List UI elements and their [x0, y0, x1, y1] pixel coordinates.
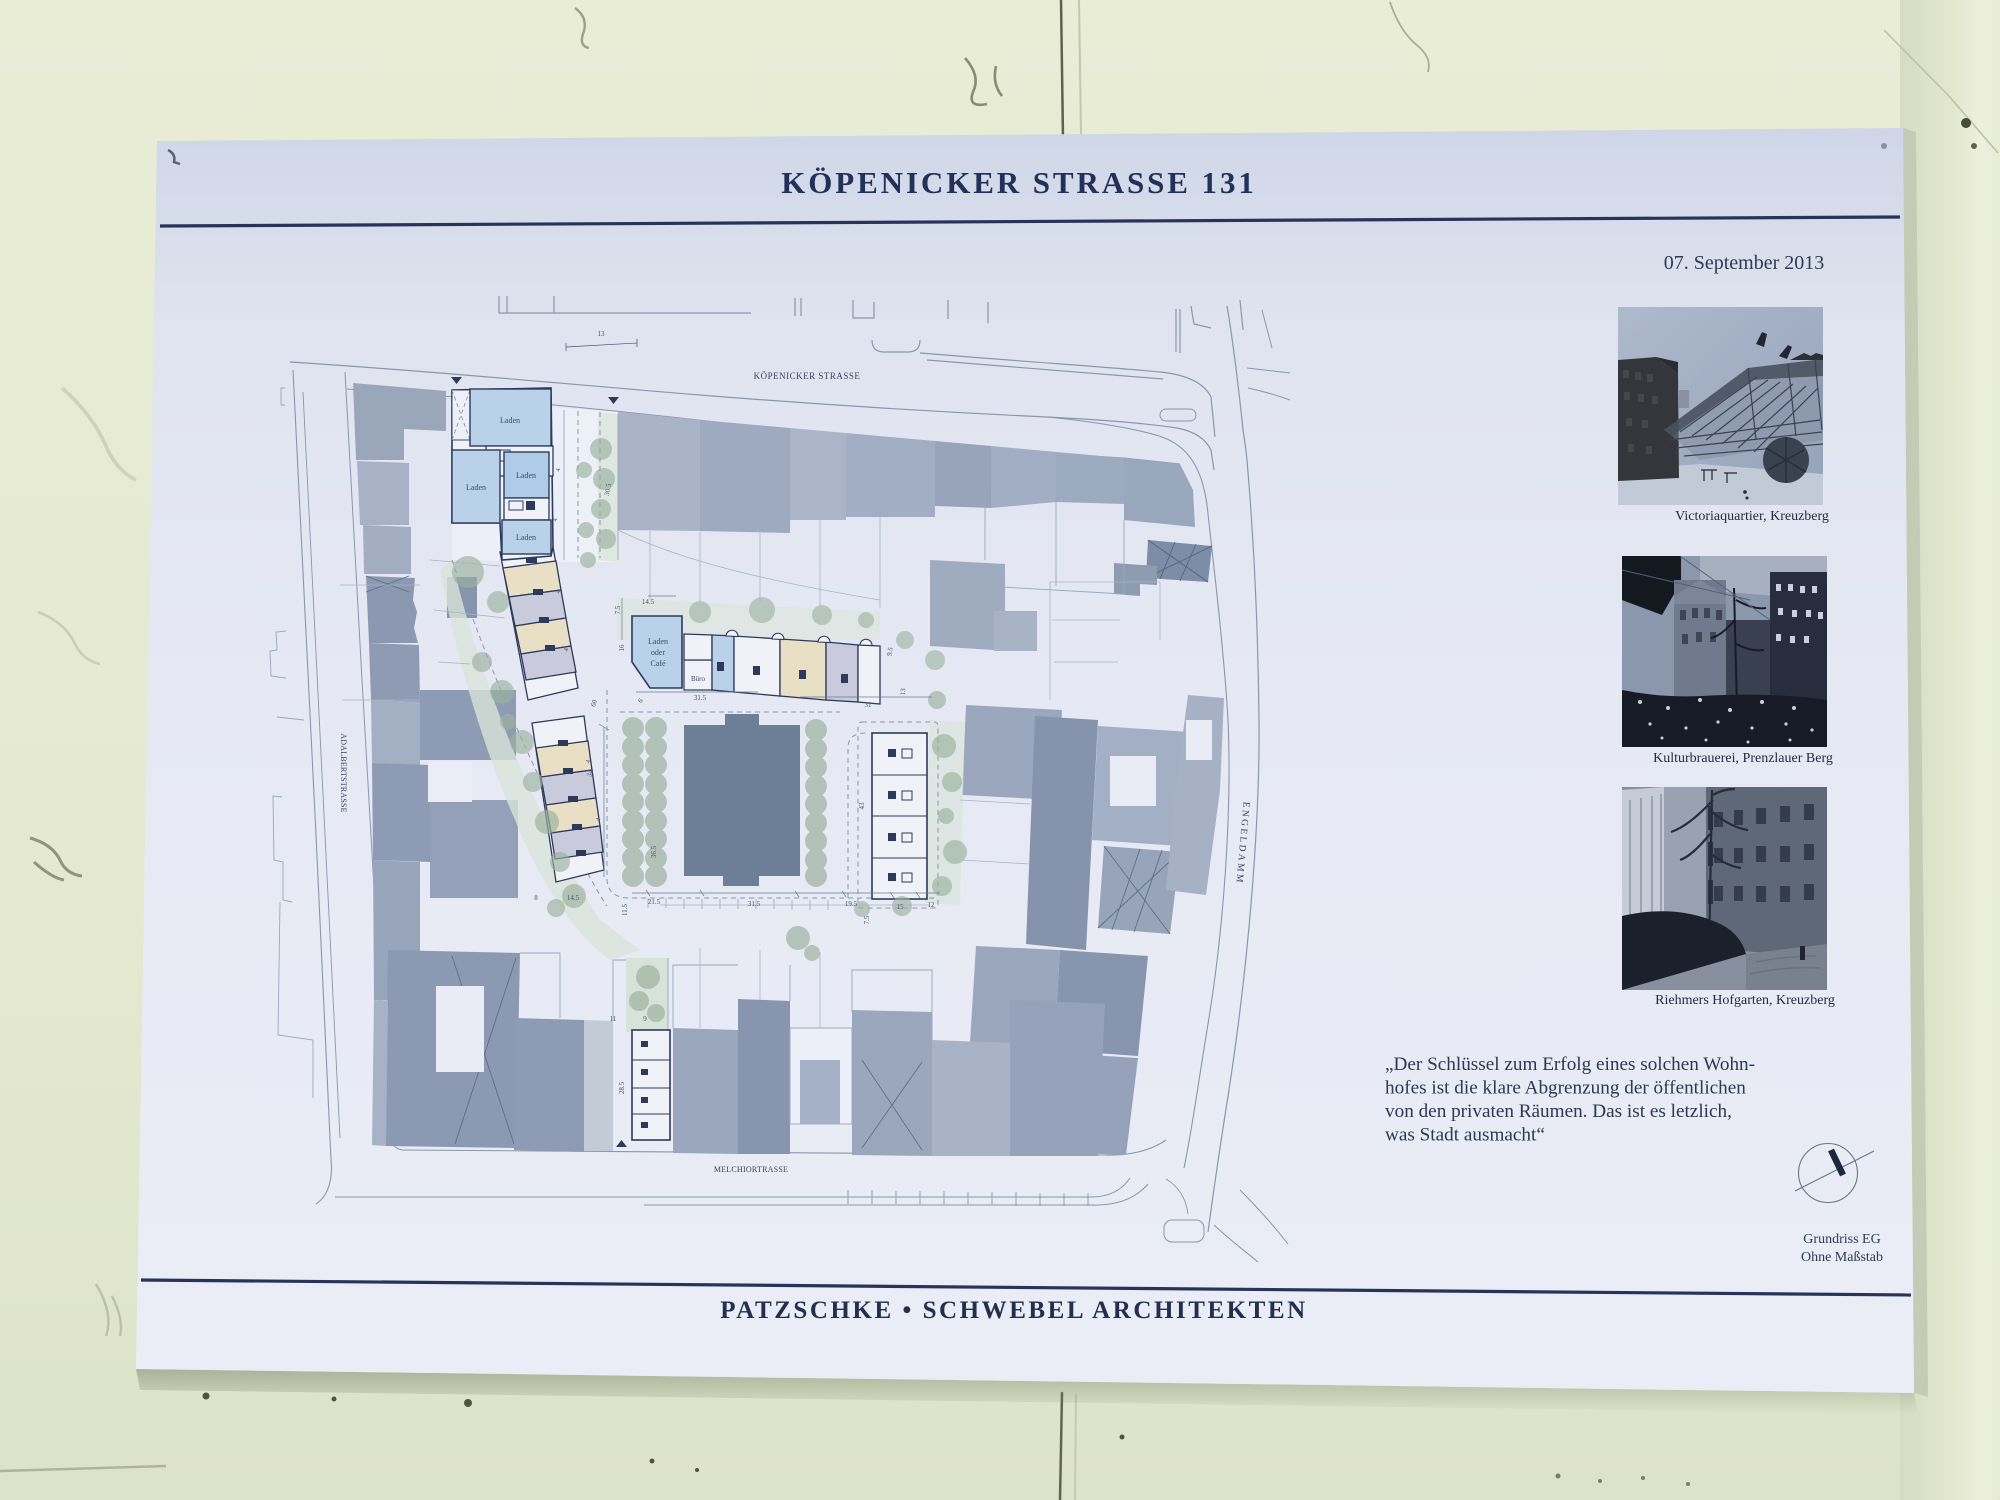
svg-text:Laden: Laden [500, 416, 520, 425]
svg-text:07. September 2013: 07. September 2013 [1664, 252, 1825, 274]
svg-text:31.5: 31.5 [694, 694, 707, 702]
svg-text:14.5: 14.5 [642, 598, 655, 606]
svg-text:Kulturbrauerei, Prenzlauer Ber: Kulturbrauerei, Prenzlauer Berg [1653, 751, 1833, 766]
svg-text:KÖPENICKER STRASSE: KÖPENICKER STRASSE [754, 371, 861, 381]
svg-text:Victoriaquartier, Kreuzberg: Victoriaquartier, Kreuzberg [1675, 509, 1829, 524]
svg-text:31: 31 [865, 701, 873, 709]
svg-text:13: 13 [899, 687, 908, 695]
svg-text:28.5: 28.5 [618, 1081, 626, 1094]
svg-text:Büro: Büro [691, 675, 706, 683]
svg-text:11: 11 [610, 1015, 617, 1023]
svg-text:13: 13 [598, 330, 606, 338]
svg-text:9: 9 [643, 1015, 647, 1023]
svg-text:36.5: 36.5 [650, 845, 658, 858]
svg-text:hofes ist die klare Abgrenzung: hofes ist die klare Abgrenzung der öffen… [1385, 1078, 1746, 1099]
svg-text:7.5: 7.5 [614, 605, 622, 614]
svg-text:11.5: 11.5 [621, 904, 629, 916]
svg-text:12: 12 [928, 901, 936, 909]
svg-text:Laden: Laden [648, 637, 668, 646]
svg-text:MELCHIORTRASSE: MELCHIORTRASSE [714, 1165, 788, 1174]
svg-text:Café: Café [650, 659, 666, 668]
svg-text:Ohne Maßstab: Ohne Maßstab [1801, 1250, 1883, 1265]
svg-text:14.5: 14.5 [567, 894, 580, 902]
svg-text:19.5: 19.5 [845, 900, 858, 908]
svg-text:Grundriss EG: Grundriss EG [1803, 1232, 1880, 1247]
svg-text:16: 16 [618, 644, 626, 652]
svg-text:15: 15 [897, 903, 905, 911]
svg-text:7.5: 7.5 [863, 915, 871, 924]
svg-text:„Der Schlüssel zum Erfolg eine: „Der Schlüssel zum Erfolg eines solchen … [1385, 1054, 1755, 1075]
svg-text:was Stadt ausmacht“: was Stadt ausmacht“ [1385, 1125, 1545, 1146]
svg-text:31.5: 31.5 [748, 900, 761, 908]
svg-text:8: 8 [534, 894, 538, 902]
svg-text:PATZSCHKE • SCHWEBEL ARCHITEKT: PATZSCHKE • SCHWEBEL ARCHITEKTEN [720, 1297, 1307, 1324]
svg-text:ADALBERTSTRASSE: ADALBERTSTRASSE [339, 733, 348, 812]
svg-text:Riehmers Hofgarten, Kreuzberg: Riehmers Hofgarten, Kreuzberg [1655, 993, 1835, 1008]
svg-text:Laden: Laden [466, 483, 486, 492]
svg-text:oder: oder [651, 648, 666, 657]
svg-text:von den privaten Räumen. Das i: von den privaten Räumen. Das ist es letz… [1385, 1101, 1732, 1122]
svg-text:43: 43 [858, 802, 866, 810]
svg-text:Laden: Laden [516, 533, 536, 542]
svg-text:KÖPENICKER STRASSE 131: KÖPENICKER STRASSE 131 [781, 165, 1257, 200]
svg-text:21.5: 21.5 [648, 898, 661, 906]
svg-text:Laden: Laden [516, 471, 536, 480]
